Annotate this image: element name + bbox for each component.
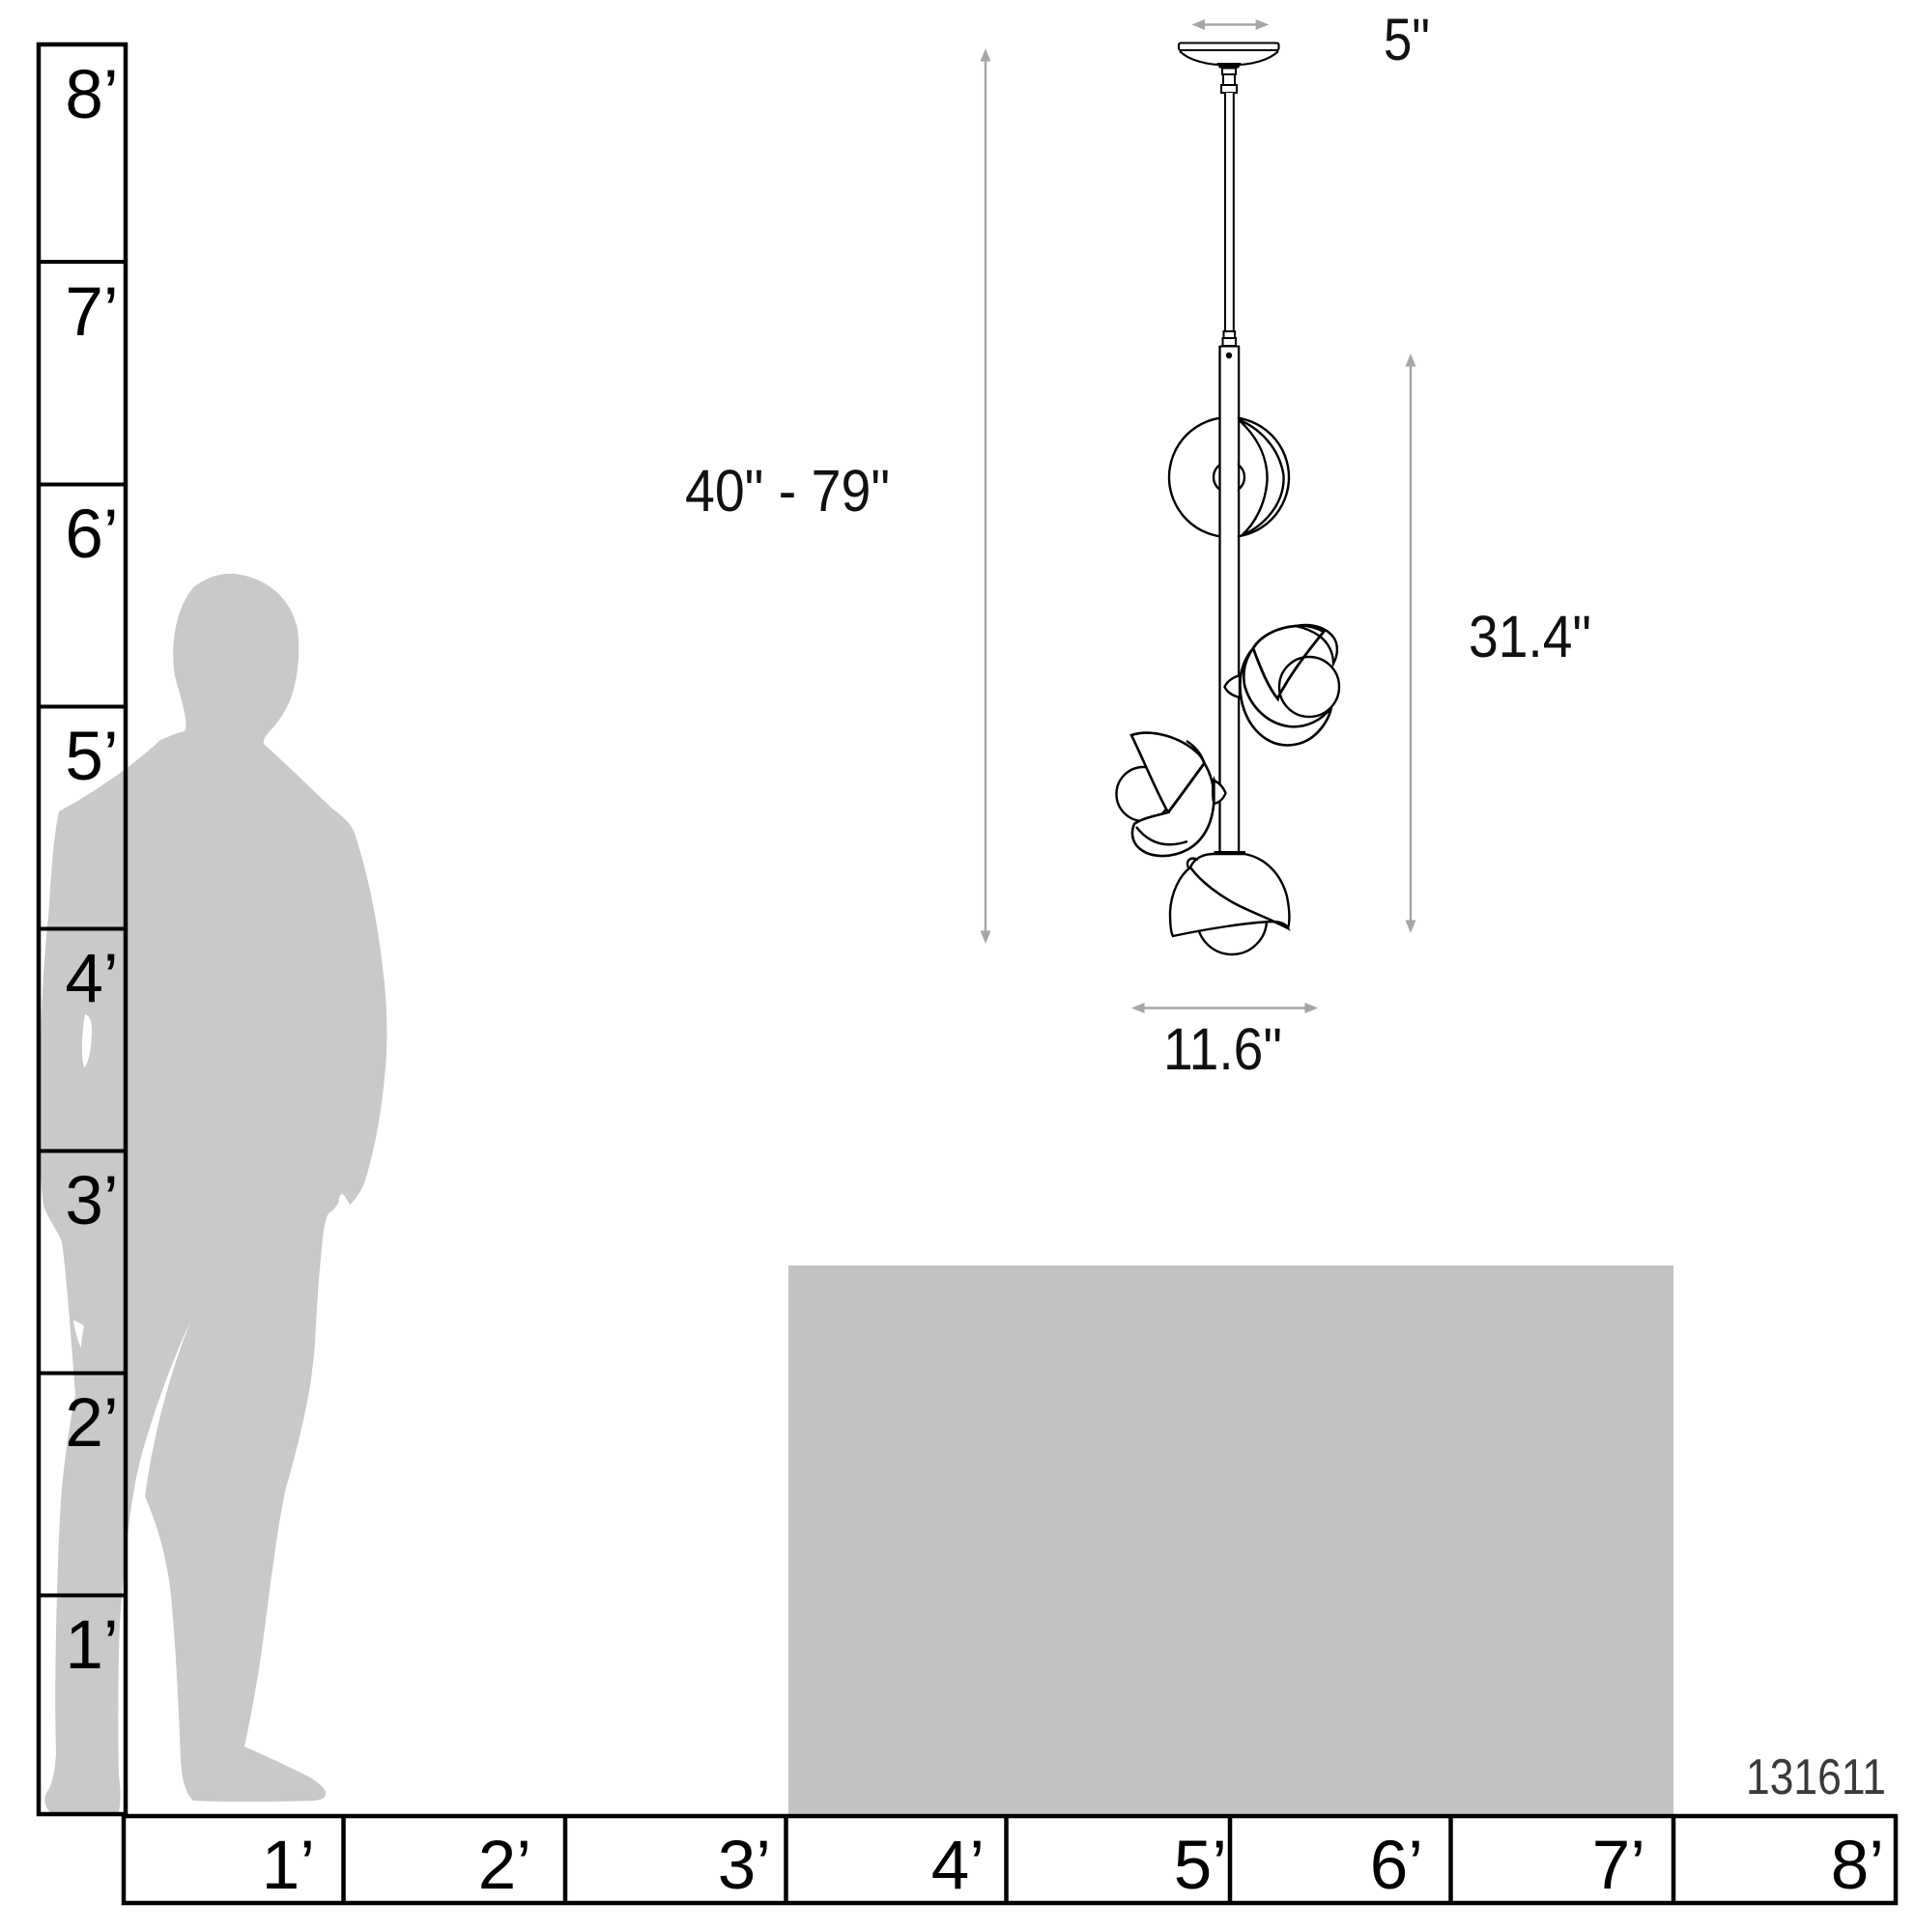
svg-text:4’: 4’	[65, 941, 118, 1017]
svg-text:5": 5"	[1384, 7, 1430, 72]
svg-text:4’: 4’	[931, 1828, 985, 1904]
svg-text:8’: 8’	[65, 57, 118, 133]
svg-text:2’: 2’	[478, 1828, 531, 1904]
svg-text:3’: 3’	[65, 1163, 118, 1239]
svg-text:8’: 8’	[1831, 1828, 1884, 1904]
svg-text:7’: 7’	[1592, 1828, 1645, 1904]
svg-text:131611: 131611	[1746, 1749, 1886, 1805]
svg-text:31.4": 31.4"	[1469, 604, 1591, 669]
svg-text:6’: 6’	[1370, 1828, 1423, 1904]
svg-text:3’: 3’	[718, 1828, 771, 1904]
svg-text:11.6": 11.6"	[1163, 1016, 1282, 1082]
svg-text:6’: 6’	[65, 497, 118, 573]
svg-text:5’: 5’	[65, 719, 118, 795]
svg-text:1’: 1’	[65, 1607, 118, 1684]
svg-text:2’: 2’	[65, 1385, 118, 1462]
svg-text:1’: 1’	[262, 1828, 315, 1904]
svg-text:5’: 5’	[1174, 1828, 1227, 1904]
svg-text:40" - 79": 40" - 79"	[685, 458, 890, 524]
svg-text:7’: 7’	[65, 274, 118, 351]
